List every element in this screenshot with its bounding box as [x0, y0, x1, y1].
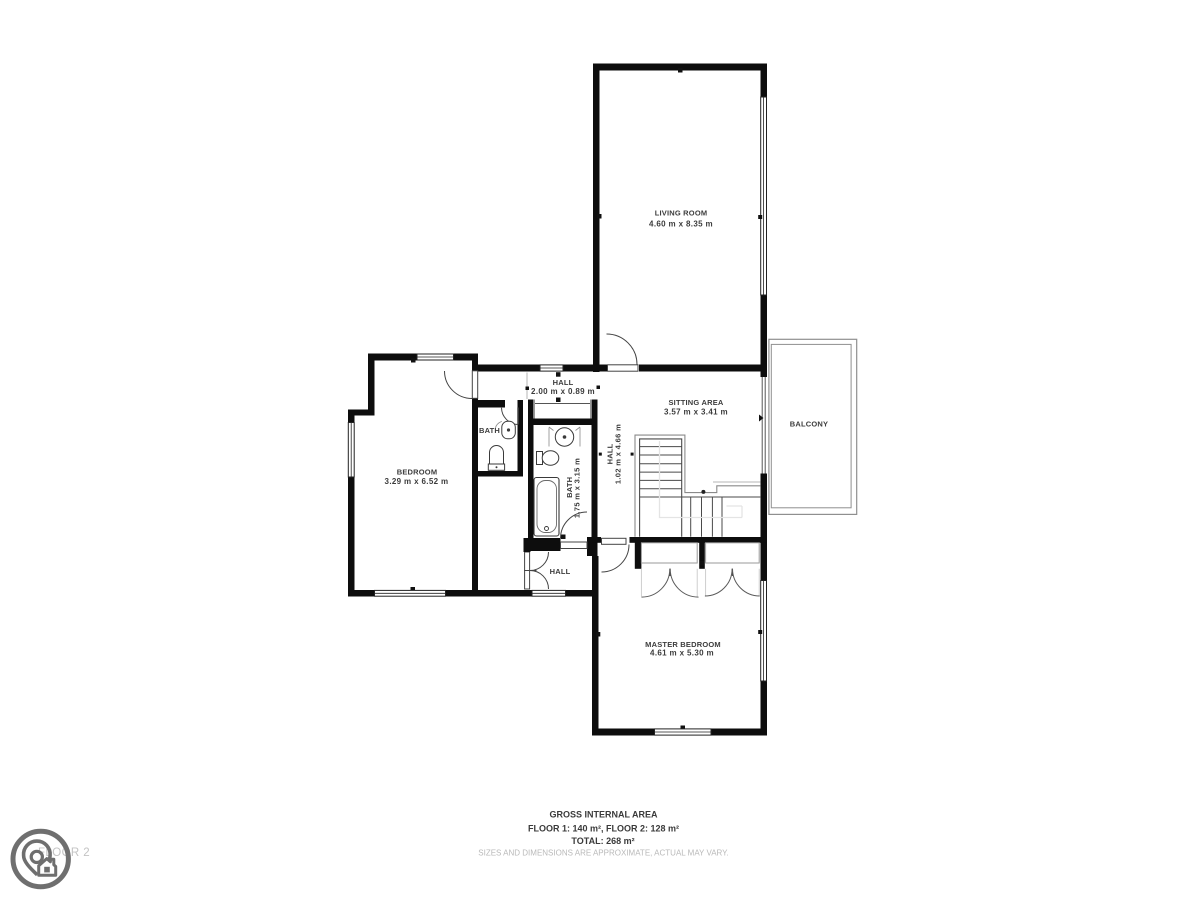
svg-text:BALCONY: BALCONY [790, 420, 828, 429]
svg-text:3.29 m x 6.52 m: 3.29 m x 6.52 m [385, 477, 449, 486]
svg-text:SIZES AND DIMENSIONS ARE APPRO: SIZES AND DIMENSIONS ARE APPROXIMATE, AC… [478, 849, 728, 858]
svg-text:GROSS INTERNAL AREA: GROSS INTERNAL AREA [549, 810, 658, 820]
svg-text:TOTAL: 268 m²: TOTAL: 268 m² [571, 836, 634, 846]
svg-text:2.00 m x 0.89 m: 2.00 m x 0.89 m [531, 387, 595, 396]
svg-text:BEDROOM: BEDROOM [397, 468, 438, 477]
svg-text:HALL: HALL [553, 378, 574, 387]
svg-text:4.61 m x 5.30 m: 4.61 m x 5.30 m [650, 649, 714, 658]
svg-text:4.60 m x 8.35 m: 4.60 m x 8.35 m [649, 220, 713, 229]
svg-text:LIVING ROOM: LIVING ROOM [655, 209, 708, 218]
svg-text:1.75 m x 3.15 m: 1.75 m x 3.15 m [573, 458, 582, 518]
svg-text:HALL: HALL [550, 567, 571, 576]
svg-text:FLOOR 1: 140 m², FLOOR 2: 128: FLOOR 1: 140 m², FLOOR 2: 128 m² [528, 824, 679, 834]
svg-text:BATH: BATH [479, 426, 500, 435]
svg-text:1.02 m x 4.66 m: 1.02 m x 4.66 m [614, 424, 623, 484]
svg-text:3.57 m x 3.41 m: 3.57 m x 3.41 m [664, 408, 728, 417]
svg-text:SITTING AREA: SITTING AREA [668, 398, 723, 407]
